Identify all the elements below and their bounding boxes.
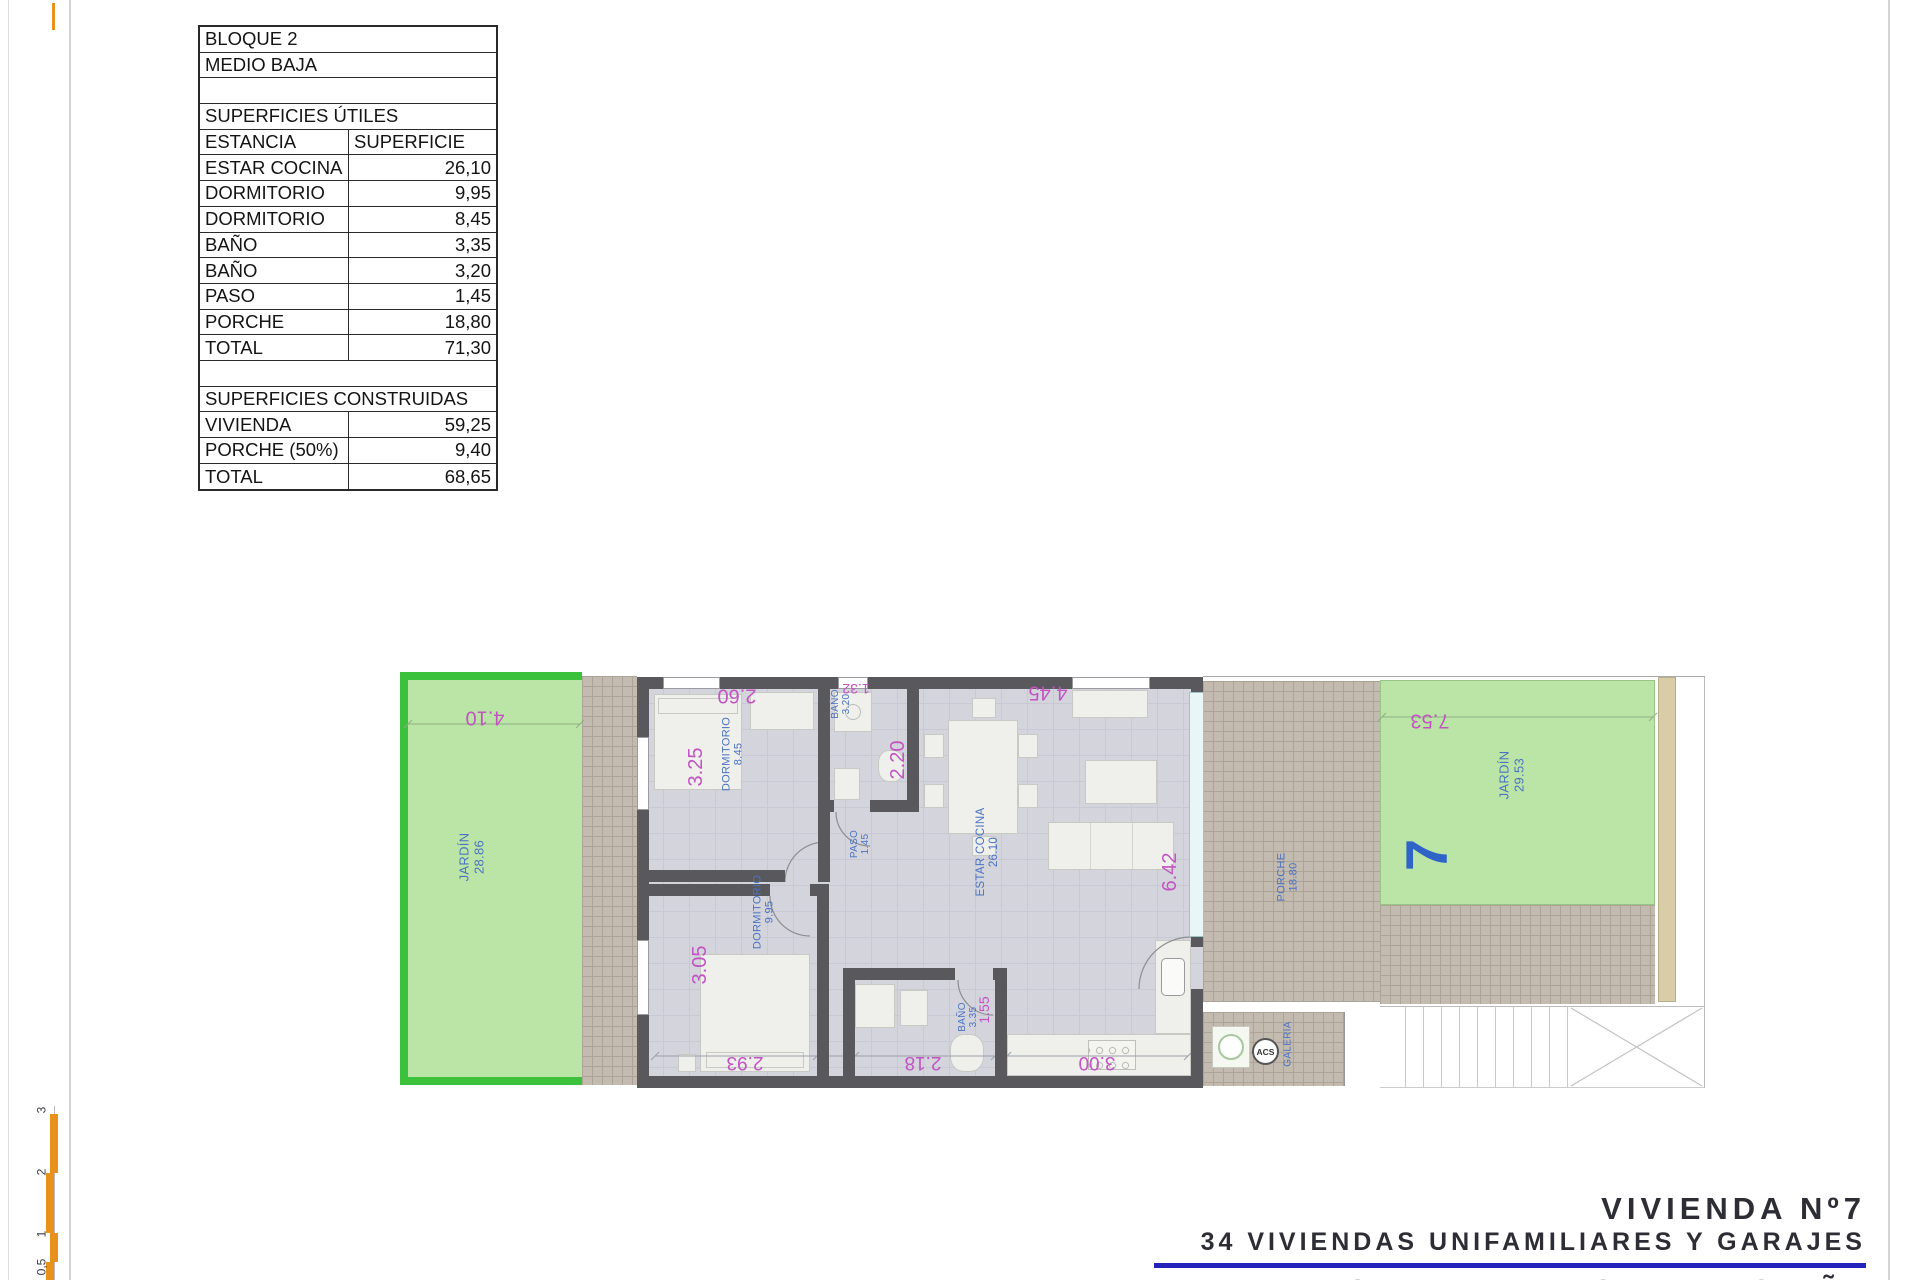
table-cell-value: 3,20 — [349, 258, 496, 284]
title-accent-rule — [1154, 1263, 1866, 1268]
table-cell-name: TOTAL — [200, 335, 349, 361]
wall — [818, 689, 830, 882]
dimension: 4.10 — [466, 706, 505, 729]
page-margin-line-left — [69, 0, 71, 1280]
wall — [995, 968, 1007, 1076]
wall — [817, 884, 829, 1076]
table-cell-name: VIVIENDA — [200, 412, 349, 438]
dimension: 1.32 — [842, 681, 869, 697]
project-title: 34 VIVIENDAS UNIFAMILIARES Y GARAJES — [1000, 1228, 1866, 1257]
table-row: BLOQUE 2 — [200, 27, 496, 53]
dimension: 7.53 — [1411, 709, 1450, 732]
wall — [870, 800, 919, 812]
drawing-sheet: BLOQUE 2 MEDIO BAJA SUPERFICIES ÚTILES E… — [0, 0, 1920, 1280]
dimension: 3.00 — [1079, 1051, 1116, 1073]
room-label-estar-cocina: ESTAR COCINA26.10 — [975, 807, 1001, 896]
block-title: BLOQUE 2 — [205, 28, 298, 50]
room-label-dormitorio-2: DORMITORIO9.95 — [752, 875, 777, 949]
window — [663, 677, 720, 689]
window — [637, 737, 649, 810]
column-header-area: SUPERFICIE — [349, 130, 496, 156]
room-label-jardin-right: JARDÍN29.53 — [1497, 751, 1526, 800]
wall — [843, 968, 955, 980]
table-cell-value: 18,80 — [349, 310, 496, 336]
unit-number: 7 — [1396, 839, 1461, 871]
table-cell-name: PASO — [200, 284, 349, 310]
table-row: MEDIO BAJA — [200, 53, 496, 79]
table-cell-name: PORCHE (50%) — [200, 438, 349, 464]
dimension: 3.05 — [689, 946, 711, 985]
table-section-header: SUPERFICIES CONSTRUIDAS — [200, 387, 496, 413]
dimension: 4.45 — [1029, 681, 1068, 704]
table-cell-name: DORMITORIO — [200, 207, 349, 233]
table-cell-value: 9,40 — [349, 438, 496, 464]
unit-title: VIVIENDA Nº7 — [1000, 1192, 1866, 1226]
table-section-header: SUPERFICIES ÚTILES — [200, 104, 496, 130]
level-title: MEDIO BAJA — [205, 54, 317, 76]
dimension: 6.42 — [1159, 853, 1181, 892]
page-margin-line-right — [1888, 0, 1890, 1280]
room-label-galeria: GALERIA — [1282, 1021, 1293, 1066]
scale-bar-segment — [46, 1173, 54, 1233]
room-label-jardin-left: JARDÍN28.86 — [457, 833, 486, 882]
room-label-dormitorio-1: DORMITORIO8.45 — [721, 717, 746, 791]
table-cell-name: BAÑO — [200, 233, 349, 259]
dimension: 3.25 — [685, 748, 707, 787]
title-block: VIVIENDA Nº7 34 VIVIENDAS UNIFAMILIARES … — [1000, 1192, 1866, 1280]
table-row-blank — [200, 361, 496, 387]
scale-tick-label: 2 — [35, 1169, 48, 1176]
scale-tick-label: 3 — [35, 1107, 48, 1114]
wall — [1191, 937, 1203, 947]
dimension: 2.60 — [718, 684, 757, 707]
table-cell-value: 1,45 — [349, 284, 496, 310]
table-cell-name: PORCHE — [200, 310, 349, 336]
column-header-room: ESTANCIA — [200, 130, 349, 156]
table-cell-name: TOTAL — [200, 464, 349, 490]
scale-bar-segment — [50, 1233, 58, 1262]
plan-linework — [400, 672, 1710, 1092]
table-cell-value: 8,45 — [349, 207, 496, 233]
table-cell-name: BAÑO — [200, 258, 349, 284]
scale-tick-label: 1 — [35, 1231, 48, 1238]
table-cell-value: 68,65 — [349, 464, 496, 490]
window — [637, 940, 649, 1015]
dimension: 1.55 — [977, 996, 993, 1023]
dimension: 2.18 — [905, 1051, 942, 1073]
wall — [637, 1076, 1203, 1088]
table-cell-value: 3,35 — [349, 233, 496, 259]
floor-plan: ACS — [400, 672, 1710, 1092]
table-row-blank — [200, 78, 496, 104]
table-cell-value: 9,95 — [349, 181, 496, 207]
wall — [1191, 677, 1203, 692]
sliding-glass-door — [1189, 692, 1204, 937]
table-cell-value: 59,25 — [349, 412, 496, 438]
project-location: PILAR DE LA HORADADA, ALICANTE, ESPAÑA — [1000, 1275, 1866, 1280]
room-label-porche: PORCHE18.80 — [1276, 853, 1301, 902]
window — [1072, 677, 1150, 689]
wall — [843, 968, 855, 1076]
table-cell-value: 71,30 — [349, 335, 496, 361]
room-label-paso: PASO1.45 — [849, 830, 871, 858]
dimension: 2.93 — [727, 1051, 764, 1073]
page-edge-line-left — [8, 0, 9, 1280]
scale-tick-label: 0,5 — [35, 1259, 48, 1276]
table-cell-value: 26,10 — [349, 155, 496, 181]
wall — [1191, 989, 1203, 1088]
wall — [830, 800, 834, 812]
dimension: 2.20 — [887, 741, 909, 780]
surface-area-table: BLOQUE 2 MEDIO BAJA SUPERFICIES ÚTILES E… — [198, 25, 498, 491]
corner-orange-tick — [52, 3, 55, 30]
table-cell-name: DORMITORIO — [200, 181, 349, 207]
table-cell-name: ESTAR COCINA — [200, 155, 349, 181]
scale-bar-segment — [50, 1114, 58, 1173]
